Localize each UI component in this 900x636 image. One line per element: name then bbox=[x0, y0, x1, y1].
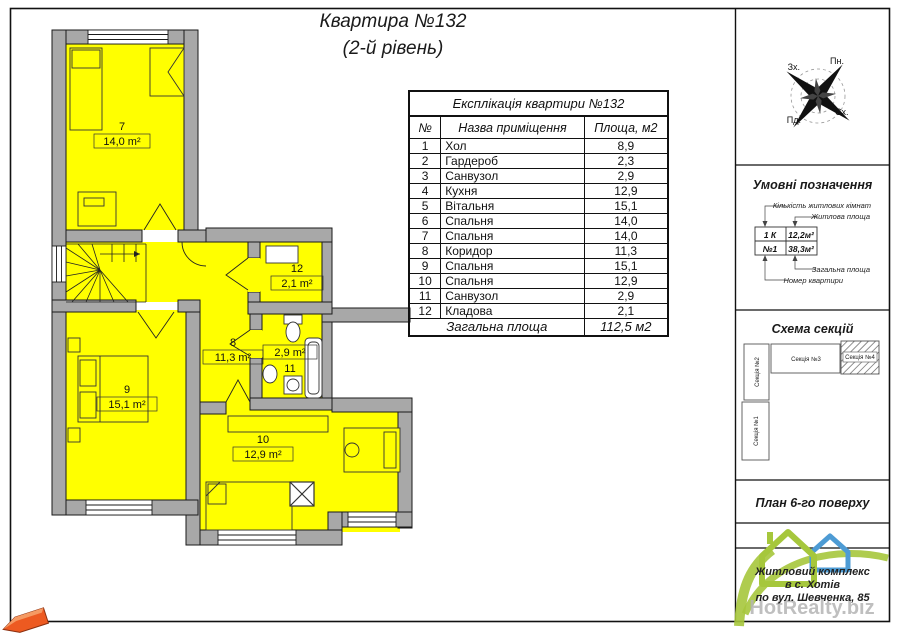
table-row: 8Коридор11,3 bbox=[409, 244, 668, 259]
desk-room10 bbox=[344, 428, 400, 472]
wardrobe-room7 bbox=[150, 48, 184, 96]
room-8-area: 11,3 m² bbox=[215, 352, 252, 364]
window-room7-top bbox=[88, 30, 168, 44]
legend-label-rooms-count: Кількість житлових кімнат bbox=[773, 201, 871, 210]
table-row: 1Хол8,9 bbox=[409, 139, 668, 154]
section-3-label: Секція №3 bbox=[791, 356, 821, 363]
sections-scheme: Секція №3 Секція №4 Секція №2 Секція №1 bbox=[742, 341, 879, 460]
col-number: № bbox=[409, 116, 441, 139]
compass-north: Пн. bbox=[830, 56, 844, 66]
col-name: Назва приміщення bbox=[441, 116, 585, 139]
wardrobe-room10 bbox=[228, 416, 328, 432]
legend-label-living-area: Житлова площа bbox=[810, 212, 870, 221]
drawing-sheet: 7 14,0 m² 12 2,1 m² 8 11,3 m² 2,9 m² 11 … bbox=[0, 0, 900, 636]
washing-machine bbox=[284, 376, 302, 394]
room-10-number: 10 bbox=[257, 434, 269, 446]
bed-room10 bbox=[206, 482, 292, 530]
table-header-row: № Назва приміщення Площа, м2 bbox=[409, 116, 668, 139]
floor-plan-label: План 6-го поверху bbox=[737, 496, 888, 510]
room-12-area: 2,1 m² bbox=[281, 278, 313, 290]
table-row: 9Спальня15,1 bbox=[409, 259, 668, 274]
compass-east: Сх. bbox=[835, 107, 849, 117]
corner-arrow bbox=[1, 608, 49, 636]
table-row: 4Кухня12,9 bbox=[409, 184, 668, 199]
legend-sample-rooms: 1 К bbox=[764, 230, 777, 240]
room-9-number: 9 bbox=[124, 384, 130, 396]
table-row: 3Санвузол2,9 bbox=[409, 169, 668, 184]
col-area: Площа, м2 bbox=[584, 116, 668, 139]
room-11-number: 11 bbox=[284, 363, 295, 375]
legend-sample-total: 38,3м² bbox=[788, 244, 815, 254]
table-row: 12Кладова2,1 bbox=[409, 304, 668, 319]
title-line-2: (2-й рівень) bbox=[288, 35, 498, 62]
table-row: 10Спальня12,9 bbox=[409, 274, 668, 289]
table-footer-row: Загальна площа 112,5 м2 bbox=[409, 319, 668, 337]
drawing-title: Квартира №132 (2-й рівень) bbox=[288, 8, 498, 62]
table-caption: Експлікація квартири №132 bbox=[409, 91, 668, 116]
desk-room7 bbox=[78, 192, 116, 226]
table-row: 2Гардероб2,3 bbox=[409, 154, 668, 169]
sink bbox=[263, 365, 277, 383]
section-2-label: Секція №2 bbox=[754, 356, 761, 386]
boiler-room12 bbox=[266, 246, 298, 263]
address-block: Житловий комплекс в с. Хотів по вул. Шев… bbox=[737, 566, 888, 605]
room-7-area: 14,0 m² bbox=[103, 136, 141, 148]
legend-label-apt-number: Номер квартири bbox=[783, 276, 843, 285]
room-10-area: 12,9 m² bbox=[244, 449, 282, 461]
window-stairs-left bbox=[52, 246, 66, 282]
legend-sample-number: №1 bbox=[763, 244, 778, 254]
compass-west: Зх. bbox=[788, 62, 800, 72]
address-line-3: по вул. Шевченка, 85 bbox=[737, 592, 888, 605]
floor-plan: 7 14,0 m² 12 2,1 m² 8 11,3 m² 2,9 m² 11 … bbox=[52, 30, 412, 545]
table-row: 5Вітальня15,1 bbox=[409, 199, 668, 214]
window-room9-bottom bbox=[86, 500, 152, 515]
window-room10-bottom-right bbox=[348, 512, 396, 527]
table-row: 6Спальня14,0 bbox=[409, 214, 668, 229]
scheme-title: Схема секцій bbox=[737, 322, 888, 336]
legend-diagram: 1 К 12,2м² №1 38,3м² Кількість житлових … bbox=[755, 201, 871, 285]
room-7-number: 7 bbox=[119, 121, 125, 133]
explication-table: Експлікація квартири №132 № Назва приміщ… bbox=[408, 90, 669, 337]
room-11-area: 2,9 m² bbox=[274, 347, 306, 359]
table-row: 7Спальня14,0 bbox=[409, 229, 668, 244]
bed-room7 bbox=[70, 48, 102, 130]
bathtub bbox=[305, 338, 322, 398]
address-line-2: в с. Хотів bbox=[737, 579, 888, 592]
total-area-label: Загальна площа bbox=[409, 319, 584, 337]
legend-title: Умовні позначення bbox=[737, 178, 888, 192]
address-line-1: Житловий комплекс bbox=[737, 566, 888, 579]
room-8-number: 8 bbox=[230, 337, 236, 349]
legend-sample-living: 12,2м² bbox=[788, 230, 815, 240]
room-12-number: 12 bbox=[291, 263, 303, 275]
legend-label-total-area: Загальна площа bbox=[812, 265, 870, 274]
total-area-value: 112,5 м2 bbox=[584, 319, 668, 337]
title-line-1: Квартира №132 bbox=[288, 8, 498, 35]
compass-south: Пд. bbox=[787, 115, 801, 125]
table-row: 11Санвузол2,9 bbox=[409, 289, 668, 304]
window-room10-bottom-left bbox=[218, 530, 296, 545]
section-1-label: Секція №1 bbox=[753, 415, 760, 445]
compass-rose: Зх. Пн. Пд. Сх. bbox=[762, 40, 874, 152]
room-9-area: 15,1 m² bbox=[108, 399, 146, 411]
section-4-label: Секція №4 bbox=[845, 354, 875, 361]
vent-shaft bbox=[290, 482, 314, 506]
